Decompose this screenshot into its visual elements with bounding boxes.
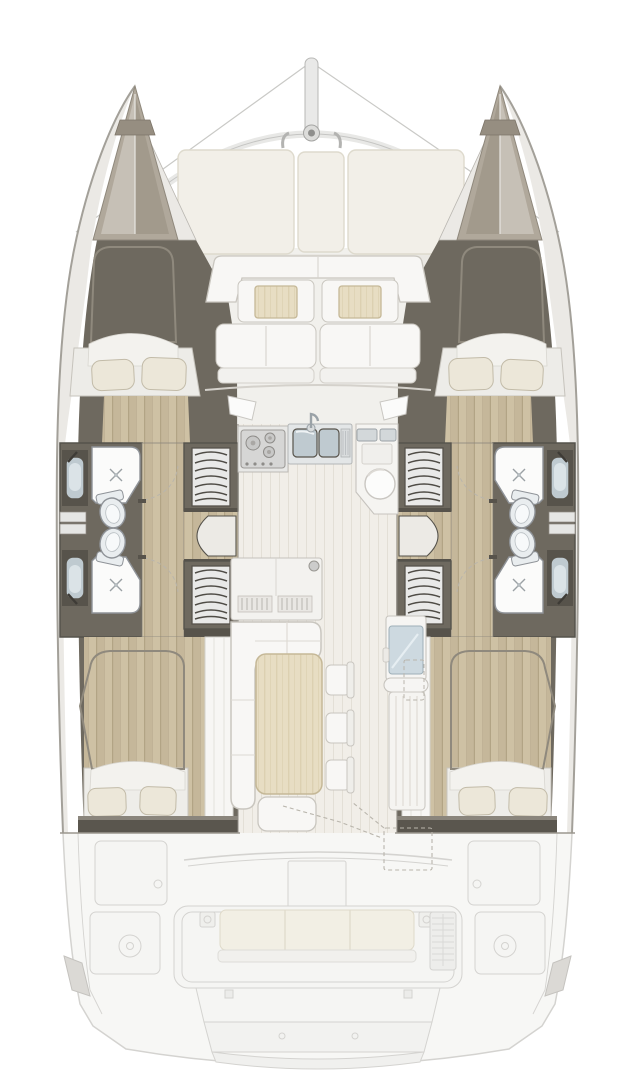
mast xyxy=(305,58,318,136)
chair-back xyxy=(347,710,354,746)
chair-back xyxy=(347,662,354,698)
stove xyxy=(241,430,285,468)
foredeck-sunpads xyxy=(178,150,464,266)
salon-chairs xyxy=(326,662,354,793)
slatted-bench xyxy=(389,692,425,810)
counter-fitting xyxy=(309,561,319,571)
cockpit-table xyxy=(339,286,381,318)
salon-bench xyxy=(258,797,316,831)
aft-bench-base xyxy=(218,950,416,962)
deck-locker xyxy=(468,841,540,905)
aft-galley-counter xyxy=(231,558,322,620)
fridge-unit xyxy=(383,616,428,810)
chair-seat xyxy=(326,713,350,743)
seat-front xyxy=(218,368,314,383)
sunpad-cushion xyxy=(298,152,344,252)
island-counter xyxy=(356,424,398,514)
aft-deck xyxy=(63,833,572,1069)
deck-locker xyxy=(95,841,167,905)
side-deck-panel xyxy=(90,912,160,974)
boat-plan-drawing xyxy=(0,0,635,1080)
fridge-base xyxy=(384,678,428,692)
side-deck-panel xyxy=(475,912,545,974)
sink-basin xyxy=(319,429,339,457)
boat-plan xyxy=(0,0,635,1080)
counter-grill xyxy=(357,429,377,441)
chair-seat xyxy=(326,760,350,790)
seat-front xyxy=(320,368,416,383)
counter-grill xyxy=(380,429,396,441)
cutting-board xyxy=(362,444,392,464)
aft-bench-cushions xyxy=(220,910,414,950)
liferaft-locker-grate xyxy=(430,912,456,970)
salon-table xyxy=(256,654,322,794)
deck-hatch xyxy=(288,861,346,909)
chair-seat xyxy=(326,665,350,695)
chair-back xyxy=(347,757,354,793)
cockpit-table xyxy=(255,286,297,318)
